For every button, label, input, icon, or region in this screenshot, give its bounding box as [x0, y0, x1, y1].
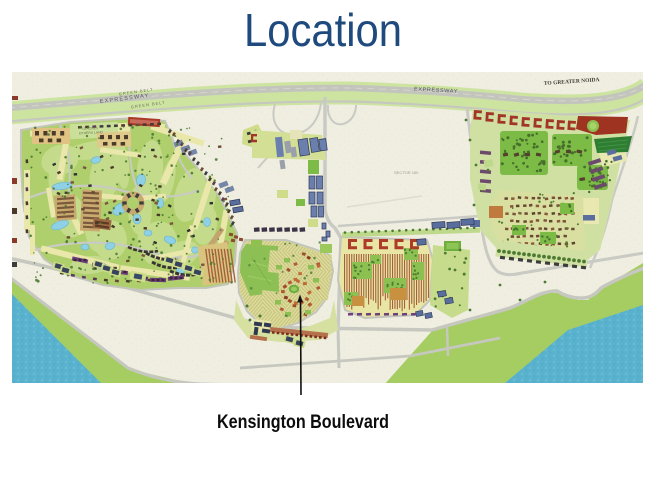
svg-text:Location: Location	[244, 4, 402, 56]
svg-text:SECTOR 150: SECTOR 150	[394, 170, 419, 175]
svg-text:Kensington Boulevard: Kensington Boulevard	[217, 411, 389, 433]
